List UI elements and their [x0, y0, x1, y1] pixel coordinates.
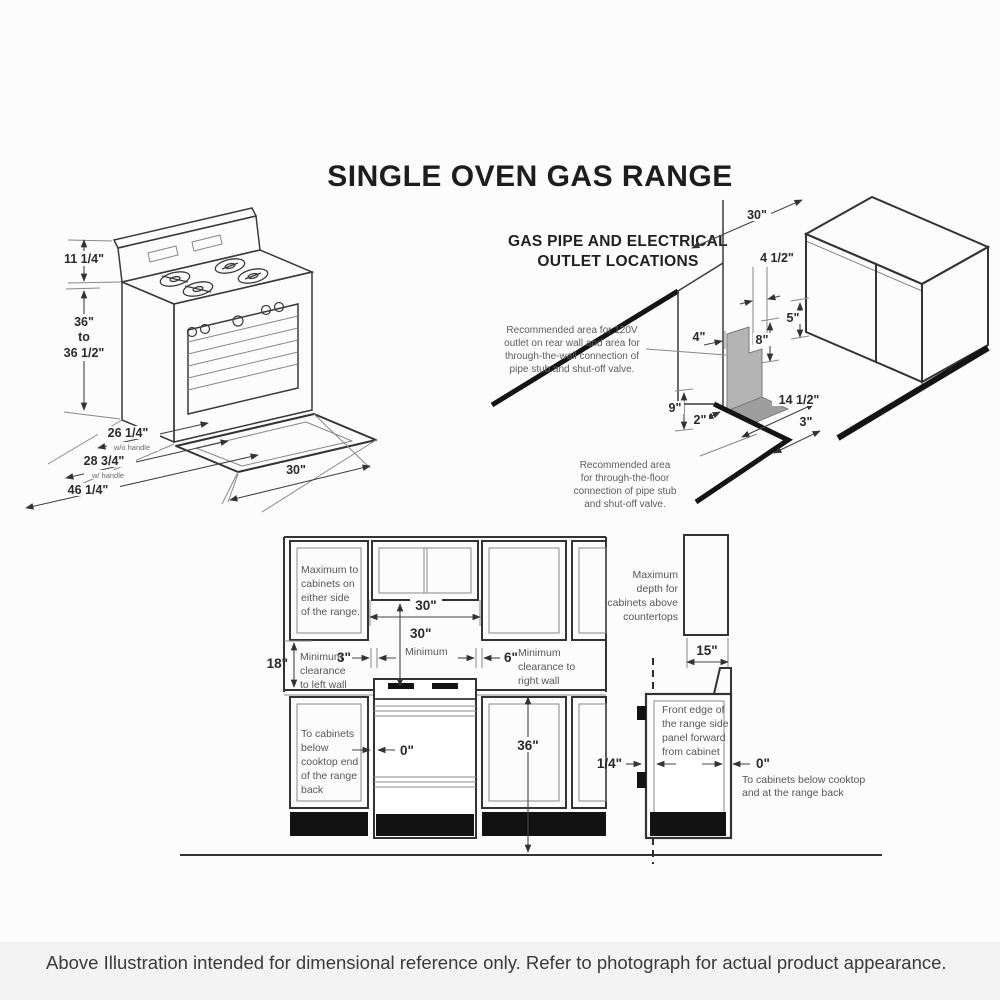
dim-depth-total: 46 1/4" [68, 483, 109, 497]
dim-height-min: 36" [74, 315, 94, 329]
gas-wall-note: Recommended area for 120V outlet on rear… [504, 325, 640, 375]
svg-text:Maximum: Maximum [632, 569, 678, 581]
svg-text:cooktop end: cooktop end [301, 756, 358, 768]
svg-text:Minimum: Minimum [300, 651, 343, 663]
page-title: SINGLE OVEN GAS RANGE [327, 160, 733, 193]
dim-3: 3" [800, 415, 813, 429]
oven-door-open [176, 414, 376, 472]
base-far-right-cabinet [572, 697, 606, 808]
upper-middle-cabinet [372, 541, 478, 600]
svg-text:either side: either side [301, 592, 350, 604]
svg-text:Recommended area: Recommended area [580, 460, 671, 471]
floor-note-leader [700, 434, 757, 456]
svg-text:pipe stub and shut-off valve.: pipe stub and shut-off valve. [510, 364, 635, 375]
gas-heading-line2: OUTLET LOCATIONS [537, 253, 698, 270]
svg-text:of the range: of the range [301, 770, 357, 782]
dim-height-to: to [78, 330, 90, 344]
left-wall-note: Minimum clearance to left wall [300, 651, 347, 691]
control-panel-window [148, 246, 178, 262]
dim-zero-side: 0" [756, 756, 770, 771]
cabinet-elevation-view: 30" 30" Minimum 3" 6" 18" 0" 36" Maximu [180, 537, 882, 855]
cabinet-door-divider [424, 548, 427, 593]
dim-cabinet-depth: 15" [696, 643, 717, 658]
dim-height-max: 36 1/2" [64, 346, 105, 360]
upper-far-right-cabinet [572, 541, 606, 640]
svg-text:and shut-off valve.: and shut-off valve. [584, 499, 666, 510]
svg-text:clearance to: clearance to [518, 661, 575, 673]
dim-depth-wo-handle: 26 1/4" [108, 426, 149, 440]
range-front-panel [174, 272, 312, 442]
svg-text:back: back [301, 784, 324, 796]
svg-text:To cabinets below cooktop: To cabinets below cooktop [742, 774, 865, 786]
range-front-view [374, 679, 476, 838]
svg-text:outlet on rear wall and area f: outlet on rear wall and area for [504, 338, 640, 349]
svg-text:to left wall: to left wall [300, 679, 347, 691]
range-toe-kick [376, 814, 474, 836]
dim-upper-clearance: 18" [267, 656, 288, 671]
upper-cabinet-side [684, 535, 728, 635]
iso-dimensions: 11 1/4" 36" to 36 1/2" 26 1/4" w/o handl… [26, 240, 376, 512]
dim-14half: 14 1/2" [779, 393, 820, 407]
gas-floor-note: Recommended area for through-the-floor c… [574, 460, 677, 510]
svg-text:and at the range back: and at the range back [742, 787, 844, 799]
dim-2: 2" [694, 413, 707, 427]
svg-text:for through-the-floor: for through-the-floor [581, 473, 670, 484]
toe-kick-left [290, 812, 368, 836]
svg-text:below: below [301, 742, 329, 754]
dim-range-width: 30" [286, 463, 306, 477]
svg-text:cabinets above: cabinets above [607, 597, 678, 609]
wall-note-leader [646, 349, 726, 355]
upper-cabinet-note: Maximum to cabinets on either side of th… [301, 564, 360, 618]
base-cabinet-note: To cabinets below cooktop end of the ran… [301, 728, 358, 796]
oven-racks [188, 316, 298, 390]
upper-left-cabinet [290, 541, 368, 640]
svg-text:through-the-wall connection of: through-the-wall connection of [505, 351, 639, 362]
toe-kick-right [482, 812, 606, 836]
svg-text:the range side: the range side [662, 718, 729, 730]
svg-text:Maximum to: Maximum to [301, 564, 358, 576]
backsplash-front [118, 216, 260, 282]
door-handle-profile [637, 772, 646, 788]
dim-depth-wo-handle-note: w/o handle [113, 443, 150, 452]
cooktop-surface [122, 250, 312, 304]
adjacent-cabinet [806, 197, 988, 382]
svg-text:To cabinets: To cabinets [301, 728, 354, 740]
dim-opening-30: 30" [747, 208, 767, 222]
control-panel-window [192, 235, 222, 251]
dim-counter-height: 36" [517, 738, 538, 753]
dim-min-height-word: Minimum [405, 646, 448, 658]
right-wall-note: Minimum clearance to right wall [518, 647, 575, 687]
door-handle-profile [637, 706, 646, 720]
svg-text:of the range.: of the range. [301, 606, 360, 618]
floor-edge-front [838, 348, 988, 438]
dim-quarter-inch: 1/4" [597, 756, 622, 771]
svg-text:panel forward: panel forward [662, 732, 726, 744]
gas-pipe-diagram: GAS PIPE AND ELECTRICAL OUTLET LOCATIONS… [492, 197, 988, 510]
svg-text:cabinets on: cabinets on [301, 578, 355, 590]
svg-text:connection of pipe stub: connection of pipe stub [574, 486, 677, 497]
burner-cap [432, 683, 458, 689]
range-left-panel [122, 282, 174, 442]
side-toe-kick [650, 812, 726, 836]
diagram-canvas: SINGLE OVEN GAS RANGE [0, 0, 1000, 1000]
footer-disclaimer: Above Illustration intended for dimensio… [46, 952, 947, 973]
svg-text:clearance: clearance [300, 665, 346, 677]
svg-text:right wall: right wall [518, 675, 559, 687]
svg-text:countertops: countertops [623, 611, 678, 623]
installation-diagram-page: SINGLE OVEN GAS RANGE [0, 0, 1000, 1000]
gas-heading-line1: GAS PIPE AND ELECTRICAL [508, 233, 728, 250]
dim-backsplash-height: 11 1/4" [64, 252, 104, 266]
cabinet-depth-note: Maximum depth for cabinets above counter… [607, 569, 678, 623]
backsplash-top [114, 208, 256, 248]
dim-opening-width: 30" [415, 598, 436, 613]
svg-text:depth for: depth for [637, 583, 679, 595]
dim-zero-left: 0" [400, 743, 414, 758]
dim-min-height: 30" [410, 626, 431, 641]
upper-right-cabinet [482, 541, 566, 640]
side-zero-note: To cabinets below cooktop and at the ran… [742, 774, 865, 799]
dim-5: 5" [787, 311, 800, 325]
svg-text:Front edge of: Front edge of [662, 704, 725, 716]
burner-cap [388, 683, 414, 689]
burner-grates [159, 256, 269, 298]
dim-depth-w-handle: 28 3/4" [84, 454, 125, 468]
dim-depth-w-handle-note: w/ handle [91, 471, 124, 480]
dim-4half: 4 1/2" [760, 251, 794, 265]
svg-text:Recommended area for 120V: Recommended area for 120V [506, 325, 638, 336]
isometric-range-view: 11 1/4" 36" to 36 1/2" 26 1/4" w/o handl… [26, 208, 376, 512]
svg-text:from cabinet: from cabinet [662, 746, 720, 758]
dim-4: 4" [693, 330, 706, 344]
range-side-view: Maximum depth for cabinets above counter… [597, 535, 865, 864]
dim-8: 8" [756, 333, 769, 347]
svg-text:Minimum: Minimum [518, 647, 561, 659]
dim-gap-right: 6" [504, 650, 518, 665]
dim-9: 9" [669, 401, 682, 415]
backguard-side-profile [714, 668, 731, 694]
